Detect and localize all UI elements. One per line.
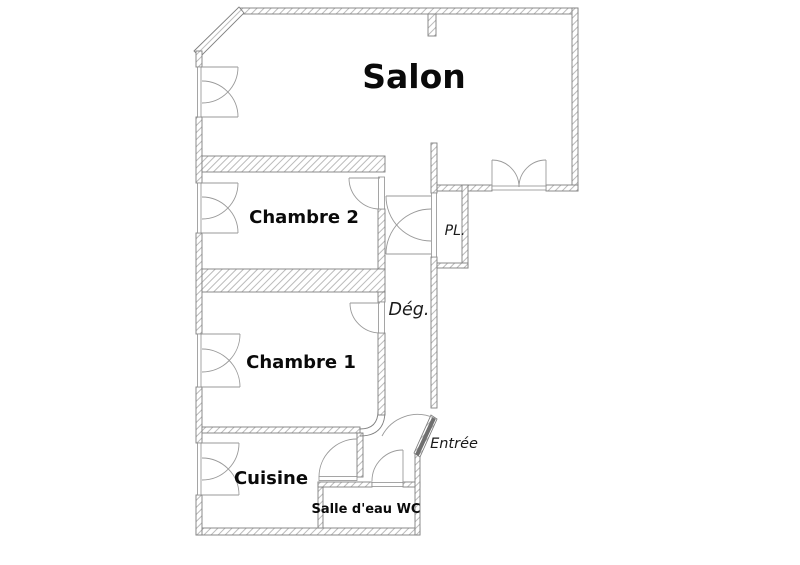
room-label-salle-eau-wc: Salle d'eau WC <box>312 502 421 517</box>
room-label-cuisine: Cuisine <box>234 468 308 489</box>
window-frame <box>198 443 202 495</box>
wall-corridor-right-upper <box>431 143 437 193</box>
placard-double-door <box>386 196 431 254</box>
wall-chambre2-top <box>202 156 385 172</box>
wall-top <box>238 8 578 14</box>
threshold-chambre1-door <box>379 302 385 333</box>
wall-cuisine-hall-stub <box>357 433 363 477</box>
wall-left-seg <box>196 117 202 183</box>
wall-left-seg <box>196 233 202 334</box>
door-swing-arc <box>372 450 403 481</box>
wall-chambre1-right-lower <box>378 333 385 415</box>
chambre2-door <box>349 178 380 209</box>
floor-plan-svg: Salon Chambre 2 Chambre 1 Cuisine Salle … <box>0 0 800 565</box>
wall-corridor-right-lower <box>431 257 437 408</box>
salle-eau-door <box>372 450 403 482</box>
threshold-salle-eau-door <box>372 483 403 487</box>
cuisine-window <box>198 443 240 495</box>
door-swing-arc <box>350 303 380 333</box>
wall-stub-top <box>428 14 436 36</box>
room-label-chambre1: Chambre 1 <box>246 352 356 373</box>
wall-chamfer <box>194 7 244 57</box>
annotation-degagement: Dég. <box>389 300 430 320</box>
door-swing-arc <box>386 196 431 241</box>
wall-right <box>572 8 578 191</box>
wall-chambre2-right <box>378 209 385 269</box>
wall-bottom <box>196 528 420 535</box>
salon-double-door <box>492 160 546 187</box>
salon-window <box>198 67 239 117</box>
door-swing-arc <box>519 160 546 187</box>
wall-salle-eau-top-left <box>318 482 372 487</box>
wall-left-seg <box>196 51 202 67</box>
wall-left-seg <box>196 495 202 535</box>
threshold-placard-door <box>432 193 437 257</box>
annotation-placard: PL. <box>445 223 466 239</box>
chambre1-door <box>350 303 380 333</box>
wall-between-chambres <box>202 269 385 292</box>
floor-plan: Salon Chambre 2 Chambre 1 Cuisine Salle … <box>0 0 800 565</box>
door-swing-arc <box>386 209 431 254</box>
cuisine-door <box>319 439 357 477</box>
chambre1-window <box>198 334 241 387</box>
wall-hall-curve-inner <box>360 411 378 429</box>
window-frame <box>198 183 202 233</box>
annotation-entree: Entrée <box>430 436 478 452</box>
wall-cuisine-top <box>202 427 360 433</box>
room-label-chambre2: Chambre 2 <box>249 207 359 228</box>
window-frame <box>198 67 202 117</box>
window-frame <box>198 334 202 387</box>
room-label-salon: Salon <box>362 57 466 96</box>
wall-chambre1-right-upper <box>378 292 385 302</box>
threshold-chambre2-door <box>379 177 385 209</box>
chambre2-window <box>198 183 239 233</box>
wall-salle-eau-right <box>415 453 420 535</box>
door-swing-arc <box>319 439 357 477</box>
door-swing-arc <box>492 160 519 187</box>
wall-placard-bottom <box>437 263 468 268</box>
wall-salon-bottom-right <box>546 185 578 191</box>
threshold-cuisine-door <box>319 477 357 481</box>
door-swing-arc <box>349 178 380 209</box>
entree-door <box>382 414 434 455</box>
wall-left-seg <box>196 387 202 443</box>
